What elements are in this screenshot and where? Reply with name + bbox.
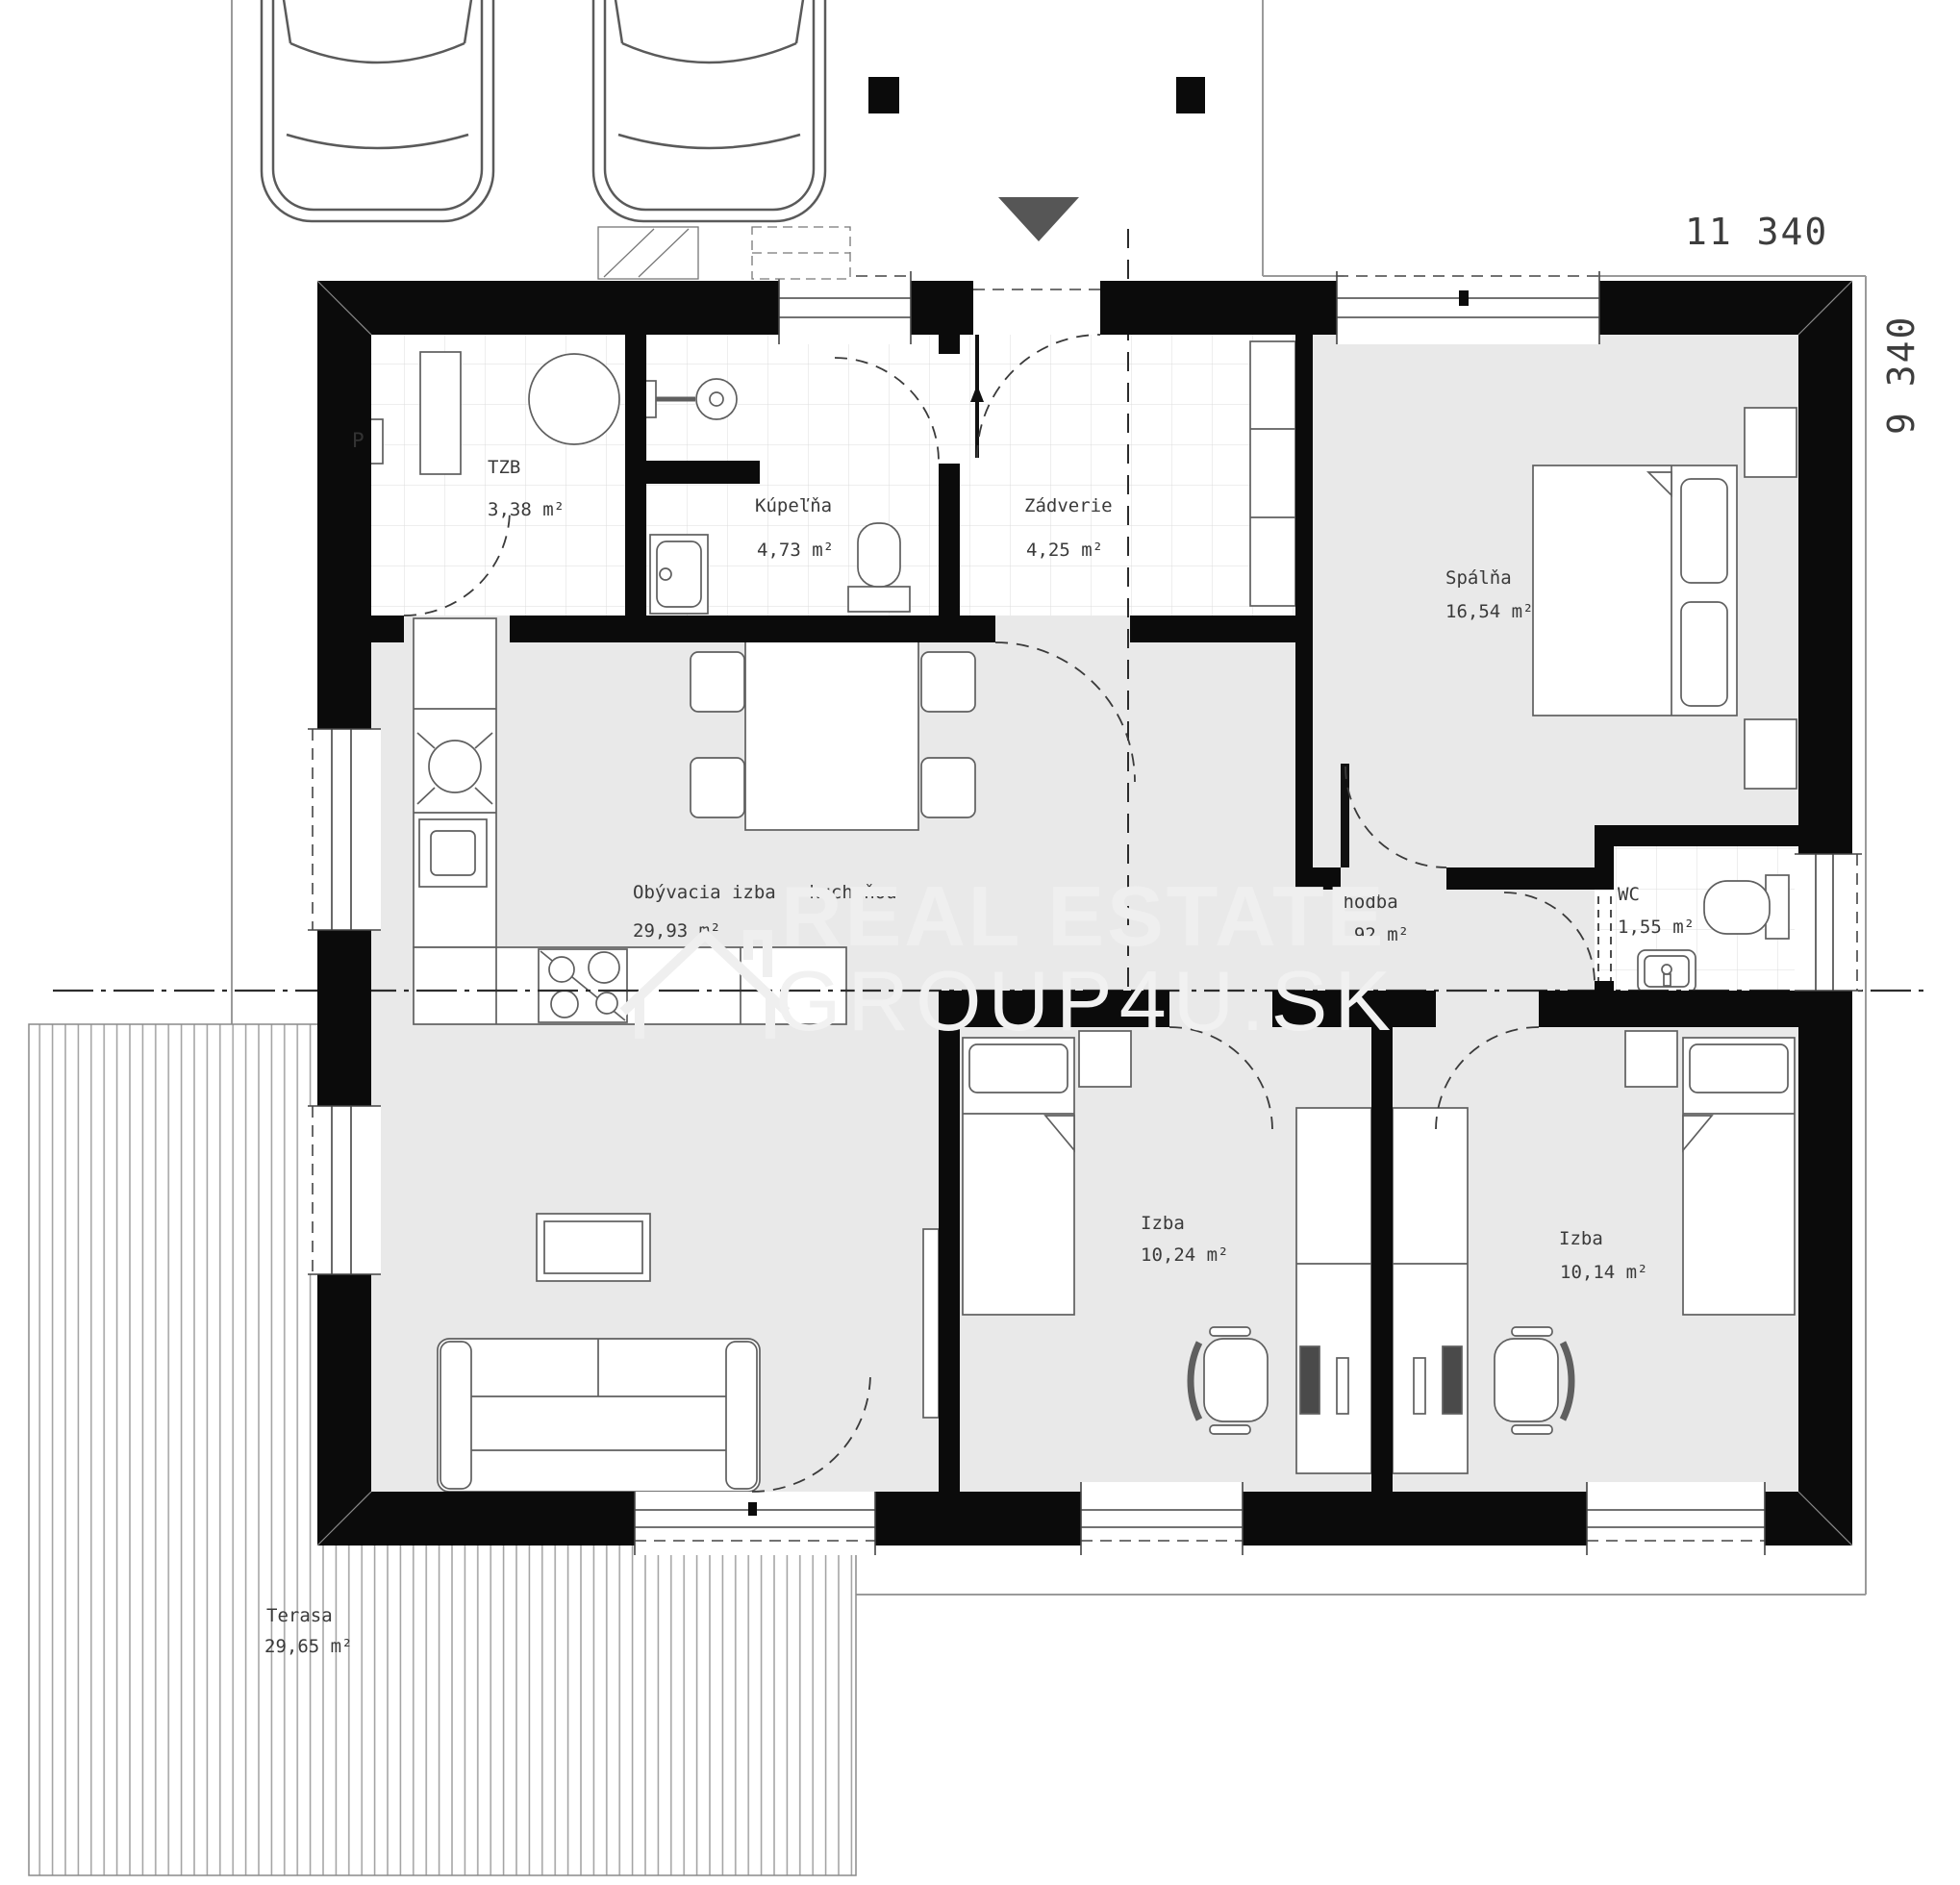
window-living xyxy=(308,1106,381,1274)
room-area-chodba: 3,92 m² xyxy=(1332,925,1409,946)
water-heater-icon xyxy=(529,354,619,444)
room-label-tzb: TZB xyxy=(488,458,520,479)
room-area-kupelna: 4,73 m² xyxy=(757,540,834,562)
dimension-width: 11 340 xyxy=(1685,214,1828,250)
window-kupelna xyxy=(779,271,911,344)
room-area-spalna: 16,54 m² xyxy=(1445,602,1534,623)
room-area-tzb: 3,38 m² xyxy=(488,500,565,521)
entrance-arrow-icon xyxy=(998,197,1079,241)
high-window-marker xyxy=(598,227,698,279)
chair xyxy=(691,652,744,712)
washing-machine-label: P xyxy=(352,431,364,451)
chair xyxy=(921,758,975,817)
toilet-icon xyxy=(1704,875,1789,939)
room-area-izba1: 10,24 m² xyxy=(1141,1245,1229,1267)
washbasin-icon xyxy=(650,535,708,614)
stove-icon xyxy=(539,949,627,1022)
bed-single xyxy=(963,1038,1074,1315)
car-icon xyxy=(262,0,493,221)
desk xyxy=(1296,1108,1371,1473)
room-label-terasa: Terasa xyxy=(266,1606,333,1627)
keyboard-icon xyxy=(1443,1346,1462,1414)
window-spalna xyxy=(1337,271,1599,344)
bed-double xyxy=(1533,465,1737,716)
room-area-obyvacia: 29,93 m² xyxy=(633,921,721,942)
keyboard-icon xyxy=(1300,1346,1319,1414)
washbasin-icon xyxy=(1638,950,1696,993)
room-label-chodba: Chodba xyxy=(1332,892,1398,914)
tzb-cabinet xyxy=(420,352,461,474)
room-label-kupelna: Kúpeľňa xyxy=(755,496,832,517)
window-kitchen xyxy=(308,729,381,930)
chair xyxy=(921,652,975,712)
room-area-izba2: 10,14 m² xyxy=(1560,1263,1648,1284)
floor-plan-page: TZB 3,38 m² Kúpeľňa 4,73 m² Zádverie 4,2… xyxy=(0,0,1960,1885)
window-izba2 xyxy=(1587,1482,1765,1555)
dimension-height: 9 340 xyxy=(1883,315,1920,435)
desk xyxy=(1393,1108,1468,1473)
bed-single xyxy=(1683,1038,1795,1315)
sofa xyxy=(438,1339,760,1492)
car-icon xyxy=(593,0,825,221)
room-label-izba1: Izba xyxy=(1141,1214,1185,1235)
room-label-spalna: Spálňa xyxy=(1445,568,1512,590)
room-area-wc: 1,55 m² xyxy=(1618,917,1695,939)
wardrobe xyxy=(1250,341,1295,606)
wardrobe xyxy=(1079,1031,1131,1087)
floor-dining xyxy=(939,616,1313,1027)
room-label-izba2: Izba xyxy=(1559,1229,1603,1250)
nightstand xyxy=(1745,719,1797,789)
oven-icon xyxy=(419,819,487,887)
room-area-zadverie: 4,25 m² xyxy=(1026,540,1103,562)
monitor-icon xyxy=(1414,1358,1425,1414)
column-marker xyxy=(1176,77,1205,113)
floor-service-tiled xyxy=(371,335,1313,652)
wardrobe xyxy=(1625,1031,1677,1087)
dining-table xyxy=(745,633,918,830)
monitor-icon xyxy=(1337,1358,1348,1414)
room-label-wc: WC xyxy=(1618,885,1640,906)
window-wc xyxy=(1795,854,1862,991)
room-label-obyvacia: Obývacia izba s kuchyňou xyxy=(633,883,897,904)
room-area-terasa: 29,65 m² xyxy=(264,1637,353,1658)
floor-plan-drawing xyxy=(0,0,1960,1885)
high-window-marker xyxy=(752,227,850,279)
chair xyxy=(691,758,744,817)
room-label-zadverie: Zádverie xyxy=(1024,496,1113,517)
column-marker xyxy=(868,77,899,113)
window-izba1 xyxy=(1081,1482,1243,1555)
nightstand xyxy=(1745,408,1797,477)
coffee-table xyxy=(537,1214,650,1281)
